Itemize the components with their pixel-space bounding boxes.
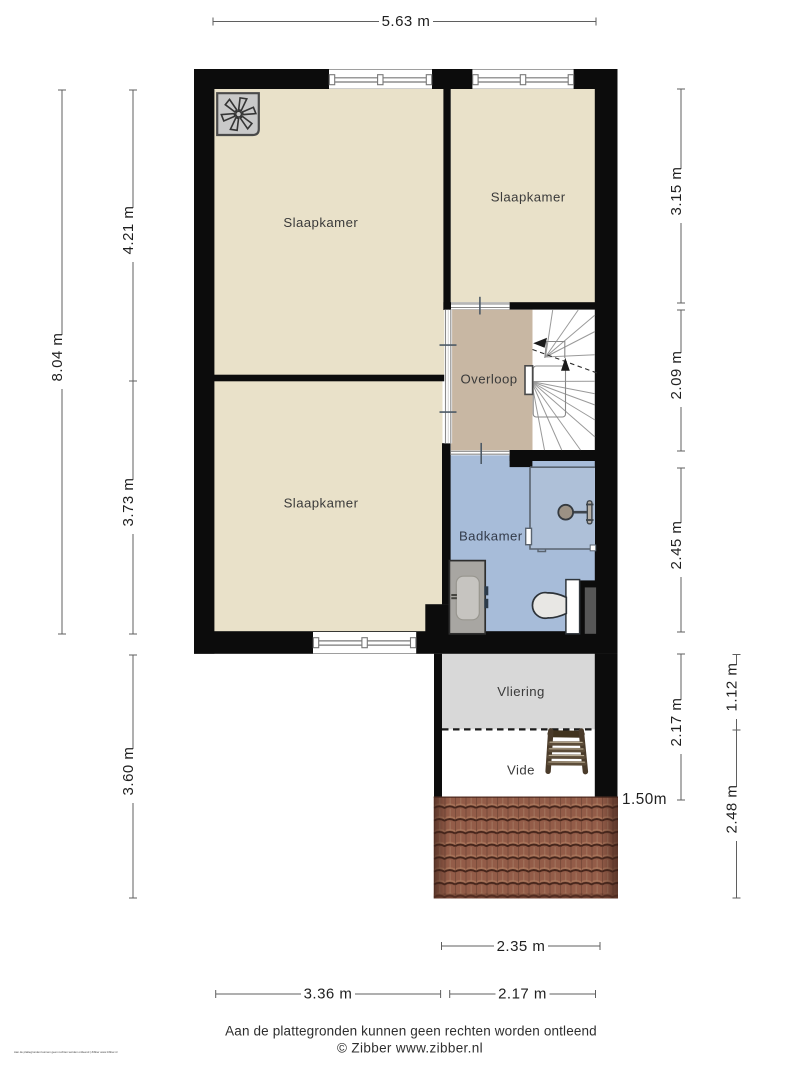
svg-text:2.48 m: 2.48 m — [724, 785, 741, 834]
svg-text:2.35 m: 2.35 m — [497, 938, 546, 955]
svg-text:Slaapkamer: Slaapkamer — [283, 215, 358, 230]
svg-text:1.50m: 1.50m — [622, 791, 667, 808]
svg-text:2.09 m: 2.09 m — [668, 351, 685, 400]
svg-text:Slaapkamer: Slaapkamer — [491, 189, 566, 204]
svg-text:3.15 m: 3.15 m — [668, 167, 685, 216]
svg-text:4.21 m: 4.21 m — [120, 206, 137, 255]
svg-text:2.45 m: 2.45 m — [668, 521, 685, 570]
svg-text:Vliering: Vliering — [497, 684, 545, 699]
svg-text:2.17 m: 2.17 m — [668, 698, 685, 747]
svg-text:8.04 m: 8.04 m — [49, 333, 66, 382]
svg-text:3.36 m: 3.36 m — [304, 985, 353, 1002]
svg-text:1.12 m: 1.12 m — [724, 663, 741, 712]
svg-text:Vide: Vide — [507, 763, 535, 778]
svg-text:2.17 m: 2.17 m — [498, 985, 547, 1002]
svg-text:Aan de plattegronden kunnen ge: Aan de plattegronden kunnen geen rechten… — [14, 1050, 118, 1054]
svg-text:3.60 m: 3.60 m — [120, 747, 137, 796]
svg-text:© Zibber www.zibber.nl: © Zibber www.zibber.nl — [337, 1041, 483, 1056]
svg-text:5.63 m: 5.63 m — [382, 13, 431, 30]
svg-text:Aan de plattegronden kunnen ge: Aan de plattegronden kunnen geen rechten… — [225, 1024, 597, 1039]
svg-text:Badkamer: Badkamer — [459, 529, 523, 544]
svg-text:3.73 m: 3.73 m — [120, 478, 137, 527]
svg-text:Overloop: Overloop — [460, 372, 517, 387]
svg-text:Slaapkamer: Slaapkamer — [284, 496, 359, 511]
